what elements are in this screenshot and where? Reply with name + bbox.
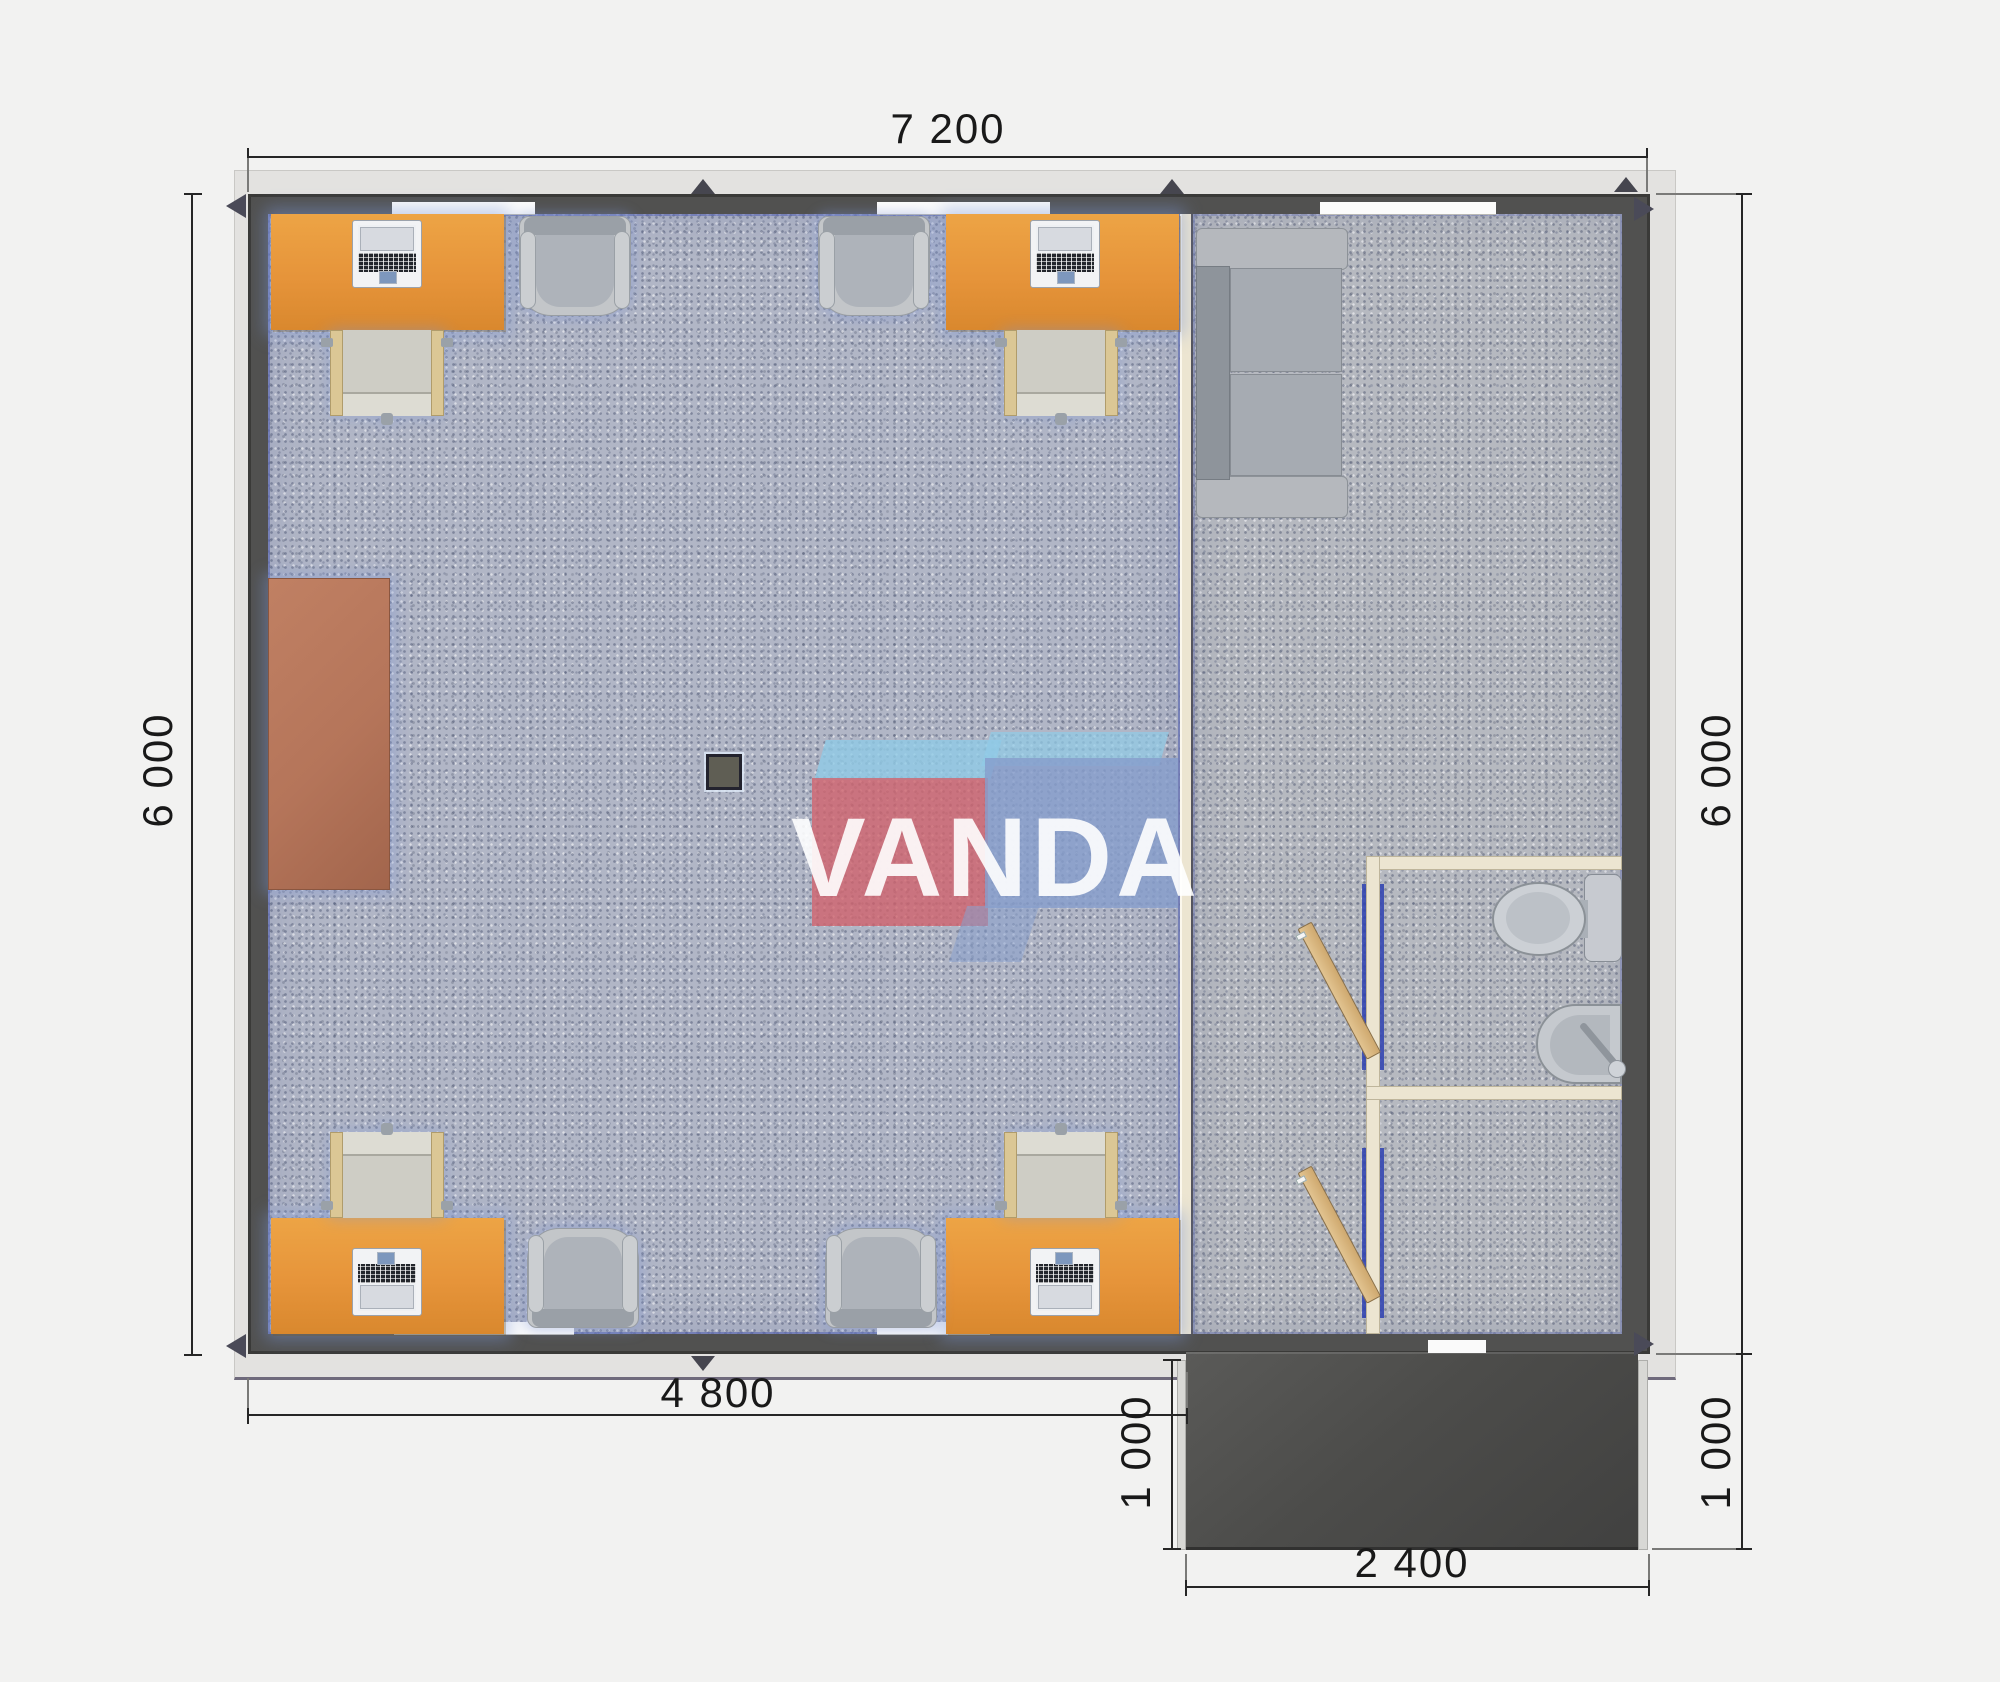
sofa [1196,228,1348,518]
sofa-armrest [1196,228,1348,270]
porch-rail-right [1638,1360,1648,1550]
extension-line [1648,1554,1650,1580]
laptop [1030,1248,1100,1316]
dimension-line-top [248,156,1648,158]
armchair-arm [920,1235,936,1313]
laptop-touchpad [377,1252,395,1265]
floor-plan: VANDA 7 200 6 000 6 000 1 000 4 800 1 00… [0,0,2000,1682]
door-frame [1380,1148,1384,1318]
sink [1536,1004,1622,1084]
corner-arrow-icon [226,1334,246,1358]
desk-bottom-left [271,1218,504,1334]
toilet-tank [1584,874,1622,962]
dimension-tick [1163,1359,1181,1361]
chair-wheel [1055,1123,1067,1135]
armchair-seat [842,1237,920,1309]
dimension-tick [247,1406,249,1424]
armchair-arm [622,1235,638,1313]
dimension-tick [184,193,202,195]
sofa-armrest [1196,476,1348,518]
bathroom-wall-south [1366,1086,1622,1100]
office-chair-bottom-right [1004,1132,1118,1218]
floor-hatch [706,754,742,790]
watermark-logo: VANDA [808,730,1188,1000]
toilet-bowl [1492,882,1586,956]
faucet-head [1608,1060,1626,1078]
laptop-touchpad [379,271,397,284]
dimension-label-porch-left: 1 000 [1113,1302,1159,1602]
porch-deck [1186,1352,1638,1550]
dimension-label-top: 7 200 [798,106,1098,152]
chair-wheel [381,1123,393,1135]
laptop-screen [1036,225,1094,253]
chair-backrest [343,1132,431,1156]
office-chair-top-left [330,330,444,416]
laptop-keyboard [1036,253,1094,272]
laptop-touchpad [1055,1252,1073,1265]
corner-arrow-icon [1634,197,1654,221]
chair-wheel [995,1201,1007,1210]
laptop [352,220,422,288]
entrance-door-threshold [1428,1340,1486,1353]
logo-brand-text: VANDA [808,792,1184,922]
armchair-seat [544,1237,622,1309]
extension-line [247,1378,249,1408]
sofa-back [1196,266,1230,480]
armchair-top-right [818,216,930,316]
sofa-cushion [1230,268,1342,372]
porch-rail-left [1177,1360,1186,1550]
toilet [1492,874,1622,964]
laptop [1030,220,1100,288]
cabinet [268,578,390,890]
dimension-tick [1163,1548,1181,1550]
dimension-tick [1648,1578,1650,1596]
armchair-back [830,1309,932,1327]
armchair-bottom-right [825,1228,937,1328]
door-frame [1380,884,1384,1070]
extension-line [1656,193,1736,195]
corner-arrow-icon [1634,1332,1654,1356]
corner-arrow-icon [226,194,246,218]
module-joint-marker [691,179,715,194]
chair-wheel [381,413,393,425]
armchair-back [532,1309,634,1327]
chair-backrest [1017,1132,1105,1156]
dimension-label-porch-width: 2 400 [1262,1540,1562,1586]
chair-wheel [441,1201,453,1210]
armchair-arm [913,231,929,309]
dimension-tick [1734,193,1752,195]
logo-sky-band [814,740,1001,780]
armchair-top-left [519,216,631,316]
module-joint-marker [1160,179,1184,194]
dimension-label-right: 6 000 [1693,620,1739,920]
chair-wheel [1115,1201,1127,1210]
chair-wheel [321,338,333,347]
laptop-screen [358,225,416,253]
armchair-arm [520,231,536,309]
armchair-arm [826,1235,842,1313]
dimension-label-office-width: 4 800 [568,1370,868,1416]
chair-wheel [1115,338,1127,347]
armchair-bottom-left [527,1228,639,1328]
armchair-back [524,217,626,235]
toilet-seat [1506,892,1570,944]
laptop-keyboard [358,253,416,272]
extension-line [1185,1554,1187,1580]
chair-wheel [441,338,453,347]
laptop-keyboard [1036,1264,1094,1283]
chair-wheel [321,1201,333,1210]
dimension-label-porch-right: 1 000 [1693,1302,1739,1602]
extension-line [247,158,249,192]
bathroom-wall-north [1366,856,1622,870]
armchair-seat [835,235,913,307]
dimension-line-porch-left [1171,1360,1173,1550]
laptop-keyboard [358,1264,416,1283]
office-chair-top-right [1004,330,1118,416]
armchair-seat [536,235,614,307]
dimension-line-left [191,194,193,1356]
sofa-cushion [1230,374,1342,476]
chair-wheel [995,338,1007,347]
office-chair-bottom-left [330,1132,444,1218]
dimension-tick [184,1354,202,1356]
armchair-back [823,217,925,235]
dimension-label-left: 6 000 [135,620,181,920]
laptop-screen [1036,1283,1094,1311]
extension-line [1646,158,1648,192]
armchair-arm [819,231,835,309]
desk-top-left [271,214,504,330]
module-joint-marker [1614,177,1638,192]
extension-line [1186,1372,1188,1408]
dimension-tick [1186,1406,1188,1424]
armchair-arm [614,231,630,309]
dimension-line-right [1741,194,1743,1550]
window-top-3 [1320,202,1496,215]
chair-wheel [1055,413,1067,425]
desk-top-right [946,214,1179,330]
dimension-tick [1185,1578,1187,1596]
laptop-screen [358,1283,416,1311]
armchair-arm [528,1235,544,1313]
laptop [352,1248,422,1316]
laptop-touchpad [1057,271,1075,284]
